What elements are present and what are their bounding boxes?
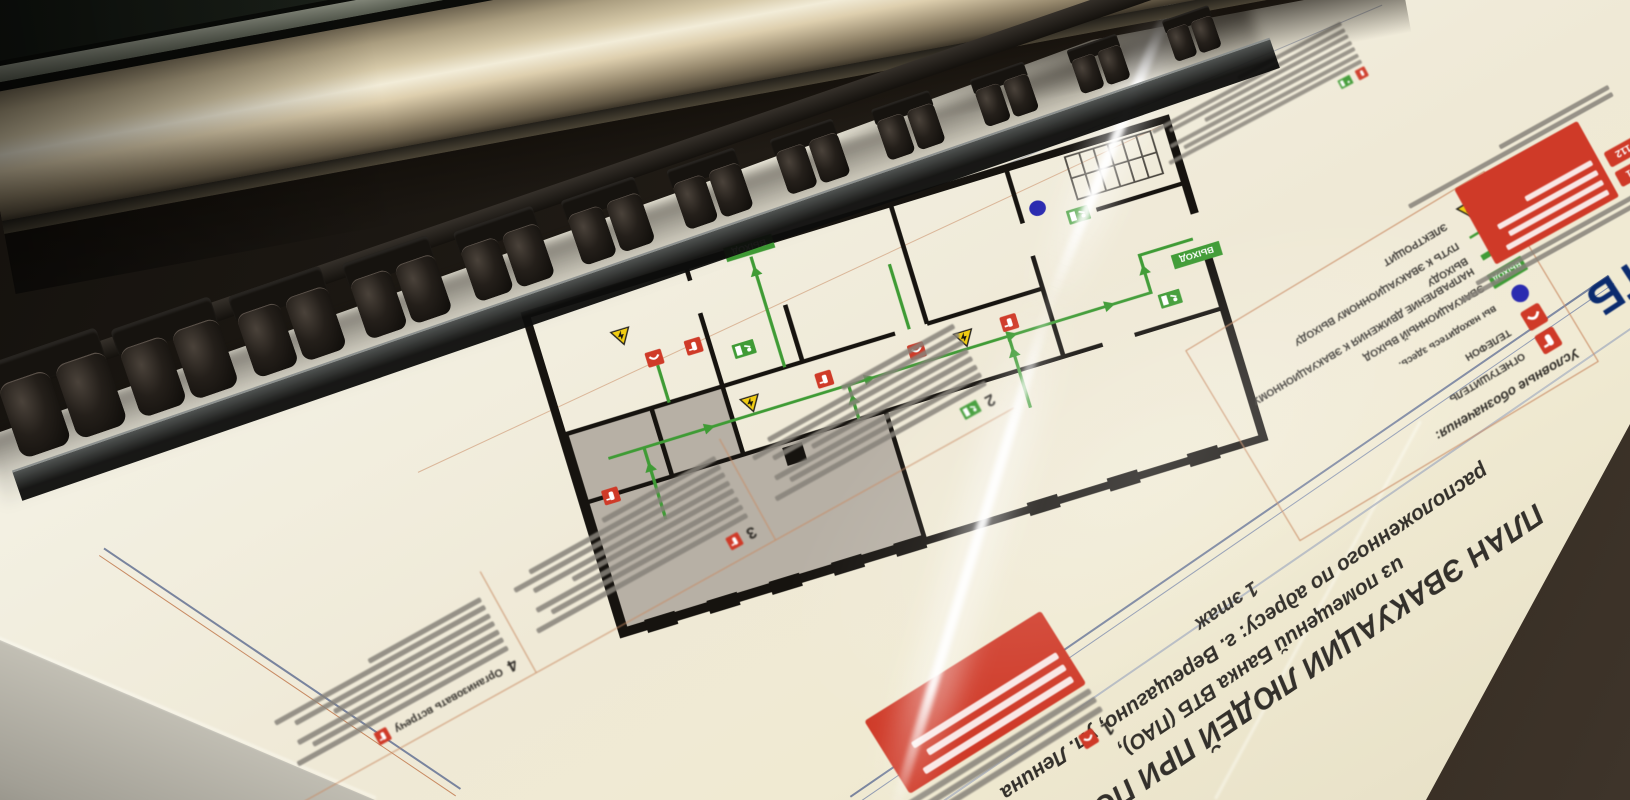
section-number: 3: [742, 521, 760, 542]
you-are-here-icon: [1027, 198, 1047, 218]
section-number: 2: [981, 389, 999, 410]
pinch-roller: [1066, 33, 1131, 94]
exit-man-icon: [959, 400, 982, 421]
pinch-roller: [769, 118, 851, 196]
telephone-icon: [1078, 728, 1100, 750]
pinch-roller: [1162, 5, 1223, 62]
section-number: 4: [503, 654, 521, 675]
fire-extinguisher-icon: [725, 532, 744, 551]
photo-printer-printing-evacuation-plan: ВЫХОД ВЫХОД: [0, 0, 1630, 800]
emergency-number-112: 112: [1603, 135, 1630, 168]
pinch-roller: [969, 61, 1039, 128]
pinch-roller: [871, 90, 947, 162]
fire-extinguisher-icon: [373, 727, 392, 746]
